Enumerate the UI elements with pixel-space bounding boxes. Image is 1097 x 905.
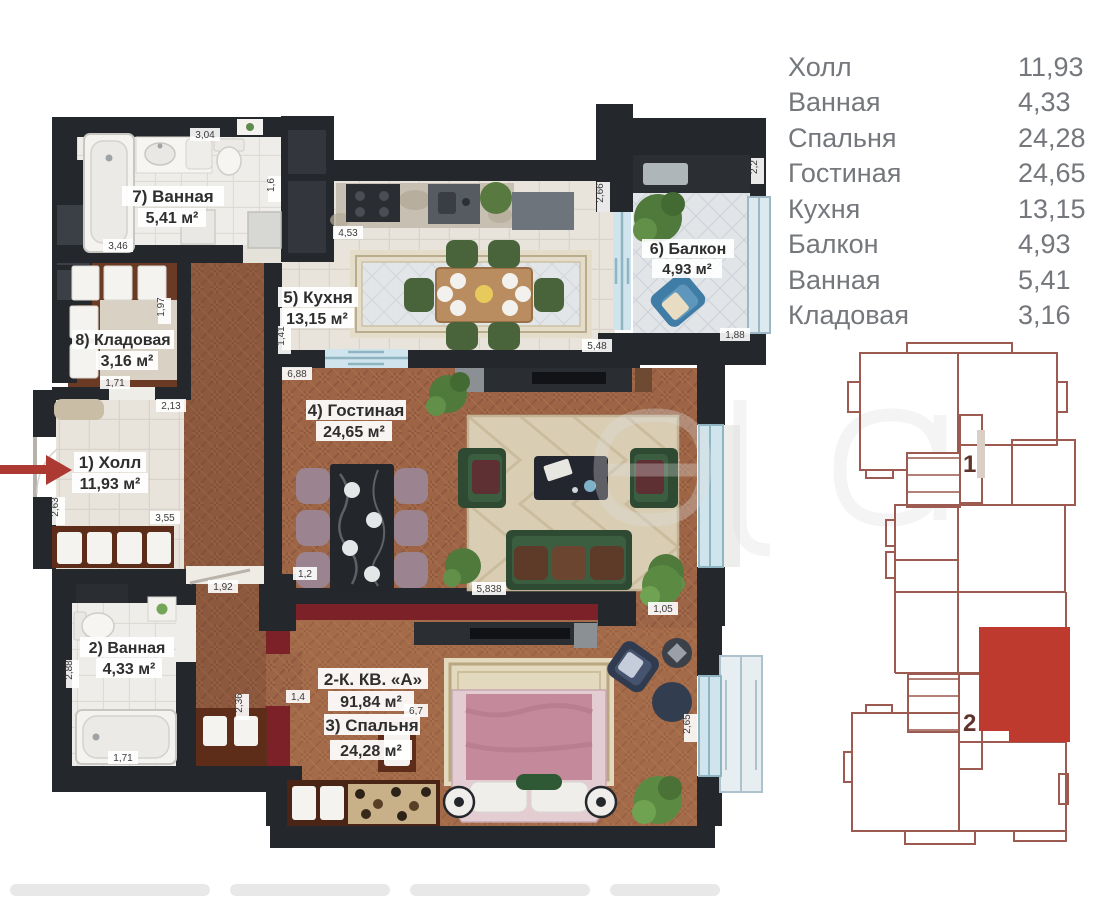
svg-text:6,7: 6,7	[409, 706, 423, 717]
svg-text:Холл: Холл	[788, 52, 852, 82]
svg-text:6) Балкон: 6) Балкон	[650, 241, 726, 258]
svg-text:7) Ванная: 7) Ванная	[132, 187, 213, 206]
svg-text:2,66: 2,66	[595, 183, 606, 203]
svg-text:1,97: 1,97	[156, 297, 167, 317]
svg-text:3,46: 3,46	[108, 241, 128, 252]
svg-text:2) Ванная: 2) Ванная	[89, 640, 166, 657]
svg-text:2,88: 2,88	[64, 660, 75, 680]
svg-text:6,88: 6,88	[287, 369, 307, 380]
svg-text:1,88: 1,88	[725, 330, 745, 341]
svg-text:Гостиная: Гостиная	[788, 158, 901, 188]
svg-text:Кухня: Кухня	[788, 194, 860, 224]
svg-text:24,65: 24,65	[1018, 158, 1086, 188]
svg-text:4,93: 4,93	[1018, 229, 1071, 259]
svg-text:2: 2	[963, 710, 976, 737]
svg-text:13,15 м²: 13,15 м²	[286, 311, 348, 328]
svg-text:2,2: 2,2	[749, 160, 760, 174]
svg-text:3,16 м²: 3,16 м²	[101, 353, 154, 370]
svg-text:1,71: 1,71	[113, 753, 133, 764]
svg-text:4) Гостиная: 4) Гостиная	[308, 401, 405, 420]
svg-text:2,36: 2,36	[234, 693, 245, 713]
svg-text:2,13: 2,13	[161, 401, 181, 412]
svg-text:Спальня: Спальня	[788, 123, 897, 153]
svg-text:24,65 м²: 24,65 м²	[323, 424, 385, 441]
svg-text:5) Кухня: 5) Кухня	[283, 288, 353, 307]
svg-text:24,28: 24,28	[1018, 123, 1086, 153]
svg-text:5,41: 5,41	[1018, 265, 1071, 295]
svg-text:Ванная: Ванная	[788, 265, 880, 295]
svg-text:1) Холл: 1) Холл	[79, 453, 142, 472]
svg-text:Балкон: Балкон	[788, 229, 879, 259]
svg-text:3,16: 3,16	[1018, 300, 1071, 330]
svg-text:3) Спальня: 3) Спальня	[325, 716, 418, 735]
svg-text:1,6: 1,6	[266, 178, 277, 192]
svg-text:5,838: 5,838	[476, 584, 501, 595]
svg-text:91,84 м²: 91,84 м²	[340, 694, 402, 711]
svg-text:4,53: 4,53	[338, 228, 358, 239]
svg-text:1,71: 1,71	[105, 378, 125, 389]
svg-text:1: 1	[963, 451, 976, 478]
svg-text:5,41 м²: 5,41 м²	[146, 210, 199, 227]
svg-text:4,93 м²: 4,93 м²	[662, 261, 711, 278]
svg-text:11,93: 11,93	[1018, 52, 1084, 82]
svg-text:2,63: 2,63	[50, 497, 61, 517]
svg-text:11,93 м²: 11,93 м²	[80, 476, 141, 493]
svg-text:3,04: 3,04	[195, 130, 215, 141]
svg-text:Кладовая: Кладовая	[788, 300, 909, 330]
svg-text:1,92: 1,92	[213, 582, 233, 593]
svg-text:4,33 м²: 4,33 м²	[103, 661, 156, 678]
svg-text:1,2: 1,2	[298, 569, 312, 580]
svg-text:24,28 м²: 24,28 м²	[340, 743, 402, 760]
svg-text:4,33: 4,33	[1018, 87, 1071, 117]
svg-text:3,55: 3,55	[155, 513, 175, 524]
svg-text:1,4: 1,4	[291, 692, 305, 703]
svg-text:2,65: 2,65	[682, 714, 693, 734]
svg-text:2-К. КВ. «А»: 2-К. КВ. «А»	[324, 670, 422, 689]
svg-text:8) Кладовая: 8) Кладовая	[75, 332, 170, 349]
svg-text:1,41: 1,41	[276, 326, 287, 346]
svg-text:5,48: 5,48	[587, 341, 607, 352]
svg-text:1,05: 1,05	[653, 604, 673, 615]
svg-text:Ванная: Ванная	[788, 87, 880, 117]
svg-text:13,15: 13,15	[1018, 194, 1086, 224]
